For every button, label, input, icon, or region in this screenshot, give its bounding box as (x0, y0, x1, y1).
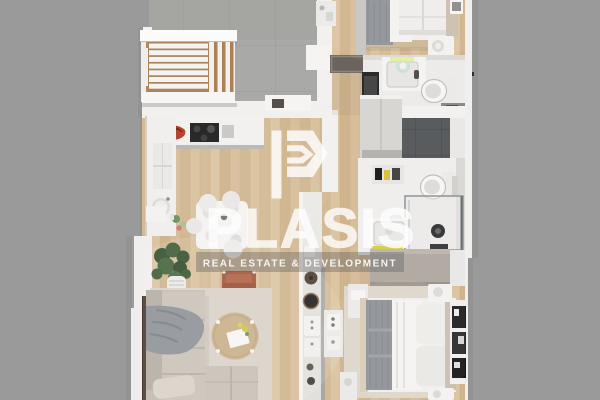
svg-text:PLASIS: PLASIS (206, 197, 417, 259)
svg-text:REAL ESTATE & DEVELOPMENT: REAL ESTATE & DEVELOPMENT (203, 259, 397, 270)
